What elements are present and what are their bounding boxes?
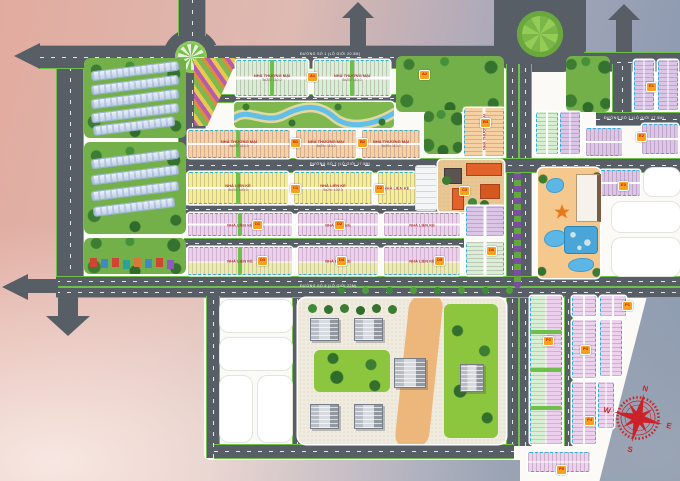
block-marker: E1 (646, 82, 657, 92)
master-plan-map: ĐƯỜNG SỐ 1 (LỘ GIỚI 20.5M) ĐƯỜNG SỐ 2 (L… (0, 0, 680, 481)
compass-s: S (627, 445, 634, 455)
park-top-right (566, 56, 610, 112)
river-icon (234, 102, 394, 128)
block-marker: D6 (486, 246, 497, 256)
apartment-tower (394, 358, 426, 388)
school-campus (438, 160, 504, 212)
river-linear-park (234, 102, 394, 128)
block-marker: A2 (419, 70, 430, 80)
townhouse-block-vertical (560, 112, 580, 154)
block-marker: P5 (556, 465, 567, 475)
water-park (538, 168, 600, 278)
school-building-orange (466, 163, 502, 176)
block-label: NHÀ THƯƠNG MẠI5x20= 110.0 (362, 139, 420, 149)
apartment-tower (354, 318, 383, 341)
boulevard-tree-median (514, 172, 521, 288)
sketch-overlay-area (416, 166, 436, 210)
pool (546, 178, 564, 193)
commercial-block: NHÀ THƯƠNG MẠI5x20= 110.0 (362, 130, 420, 158)
block-label: NHÀ THƯƠNG MẠI5x20= 110.0 (236, 73, 308, 83)
block-marker: P4 (584, 416, 595, 426)
block-median (530, 330, 562, 334)
townhouse-block-vertical (466, 206, 504, 236)
commercial-block-vertical (536, 112, 558, 154)
block-marker: P3 (580, 345, 591, 355)
block-median (530, 368, 562, 372)
apartment-tower (310, 318, 339, 341)
starfish-playground (554, 204, 570, 220)
block-label: NHÀ LIỀN KỀ (384, 258, 460, 263)
townhouse-block-duo: NHÀ LIỀN KỀ (384, 247, 460, 275)
reserved-block (258, 376, 292, 442)
road-label-2: ĐƯỜNG SỐ 2 (LỘ GIỚI 17.5M) (604, 116, 664, 120)
commercial-block-vertical: NHÀ THƯƠNG MẠI (464, 108, 504, 156)
block-label: NHÀ THƯƠNG MẠI5x20= 110.0 (296, 139, 356, 149)
commercial-block: NHÀ THƯƠNG MẠI5x20= 110.0 (236, 60, 308, 96)
reserved-block (220, 300, 292, 332)
block-marker: B1 (290, 138, 301, 148)
street-tree-row (338, 287, 345, 294)
road-south-arterial (56, 276, 680, 298)
townhouse-block-vertical (658, 60, 678, 110)
block-marker: B3 (480, 118, 491, 128)
block-marker: D3 (257, 256, 268, 266)
commercial-block-vertical (466, 242, 504, 275)
block-marker: D4 (336, 256, 347, 266)
block-marker: E2 (636, 132, 647, 142)
reserved-block (220, 376, 252, 442)
warehouse-block-1 (84, 58, 186, 138)
road-label-3: ĐƯỜNG SỐ 7 (LỘ GIỚI 17.5M) (310, 162, 370, 166)
road-north-stub (178, 0, 206, 36)
townhouse-block-vertical (572, 382, 596, 444)
park-mini-buildings (84, 238, 186, 274)
block-marker: E3 (618, 181, 629, 191)
block-label: NHÀ LIỀN KỀ (188, 258, 292, 263)
block-label: NHÀ THƯƠNG MẠI5x20= 110.0 (314, 73, 390, 83)
compass-e: E (665, 421, 672, 431)
campus-lawn-center (314, 350, 390, 392)
road-stub-up-1 (350, 18, 366, 46)
tree-patch (424, 110, 462, 154)
road-stub-down (58, 296, 78, 318)
block-marker: C2 (374, 184, 385, 194)
block-label: NHÀ LIỀN KỀ (188, 222, 292, 227)
block-marker: C3 (459, 186, 470, 196)
reserved-block (220, 338, 292, 370)
commercial-block: NHÀ THƯƠNG MẠI5x20= 110.0 (296, 130, 356, 158)
townhouse-block-duo: NHÀ LIỀN KỀ (188, 247, 292, 275)
apartment-tower (310, 404, 339, 429)
block-label: NHÀ LIỀN KỀ5x20= 100.0 (294, 183, 372, 193)
block-label: NHÀ LIỀN KỀ5x20= 100.0 (188, 183, 288, 193)
block-label: NHÀ THƯƠNG MẠI5x20= 110.0 (188, 139, 290, 149)
block-marker: D5 (434, 256, 445, 266)
apartment-campus (298, 298, 506, 444)
road-right-vertical (612, 64, 632, 114)
arrow-left-bottom-icon (2, 274, 28, 300)
road-west-vertical (56, 58, 84, 280)
roundabout-large-center (517, 11, 563, 57)
block-marker: D1 (252, 220, 263, 230)
road-stub-left-bottom (26, 279, 58, 293)
pool (544, 230, 566, 247)
compass-w: W (602, 405, 612, 416)
reserved-block (612, 202, 680, 232)
mini-houses (90, 258, 97, 267)
road-label-4: ĐƯỜNG SỐ 9 (LỘ GIỚI 22M) (300, 284, 357, 288)
arrow-up-1-icon (342, 2, 374, 18)
block-marker: P2 (543, 336, 554, 346)
townhouse-block (642, 124, 678, 154)
townhouse-block: NHÀ LIỀN KỀ (384, 213, 460, 236)
road-stub-up-2 (616, 20, 632, 52)
townhouse-block: NHÀ LIỀN KỀ5x20= 100.0 (188, 172, 288, 204)
block-marker: B2 (357, 138, 368, 148)
road-white-col (206, 296, 220, 458)
reserved-block (644, 168, 680, 196)
mixed-block-column (530, 296, 562, 444)
clubhouse-building (576, 174, 601, 222)
school-building-orange (480, 184, 500, 199)
reserved-block (612, 238, 680, 276)
warehouse-block-2 (84, 142, 186, 234)
tree-park-top (396, 56, 504, 112)
townhouse-block-vertical (600, 320, 622, 376)
stone-pool (564, 226, 598, 254)
school-building-dark (444, 168, 462, 184)
townhouse-block: NHÀ LIỀN KỀ5x20= 100.0 (294, 172, 372, 204)
townhouse-block (586, 128, 622, 156)
apartment-tower (354, 404, 383, 429)
block-marker: C1 (290, 184, 301, 194)
compass-n: N (642, 384, 650, 394)
block-marker: P1 (622, 301, 633, 311)
block-median (530, 406, 562, 410)
townhouse-block: NHÀ LIỀN KỀ (188, 213, 292, 236)
warehouse-roof (93, 197, 176, 217)
block-label: NHÀ LIỀN KỀ (384, 222, 460, 227)
townhouse-block-vertical (572, 296, 596, 316)
campus-tree-row (308, 304, 317, 313)
block-marker: D2 (334, 220, 345, 230)
arrow-down-icon (46, 316, 90, 336)
block-marker: A1 (307, 72, 318, 82)
apartment-tower (460, 364, 484, 392)
pool (568, 258, 594, 272)
commercial-block: NHÀ THƯƠNG MẠI5x20= 110.0 (188, 130, 290, 158)
road-label-1: ĐƯỜNG SỐ 1 (LỘ GIỚI 20.5M) (300, 52, 360, 56)
road-campus-south (214, 444, 514, 459)
commercial-block: NHÀ THƯƠNG MẠI5x20= 110.0 (314, 60, 390, 96)
arrow-up-2-icon (608, 4, 640, 20)
arrow-left-top-icon (14, 43, 40, 69)
